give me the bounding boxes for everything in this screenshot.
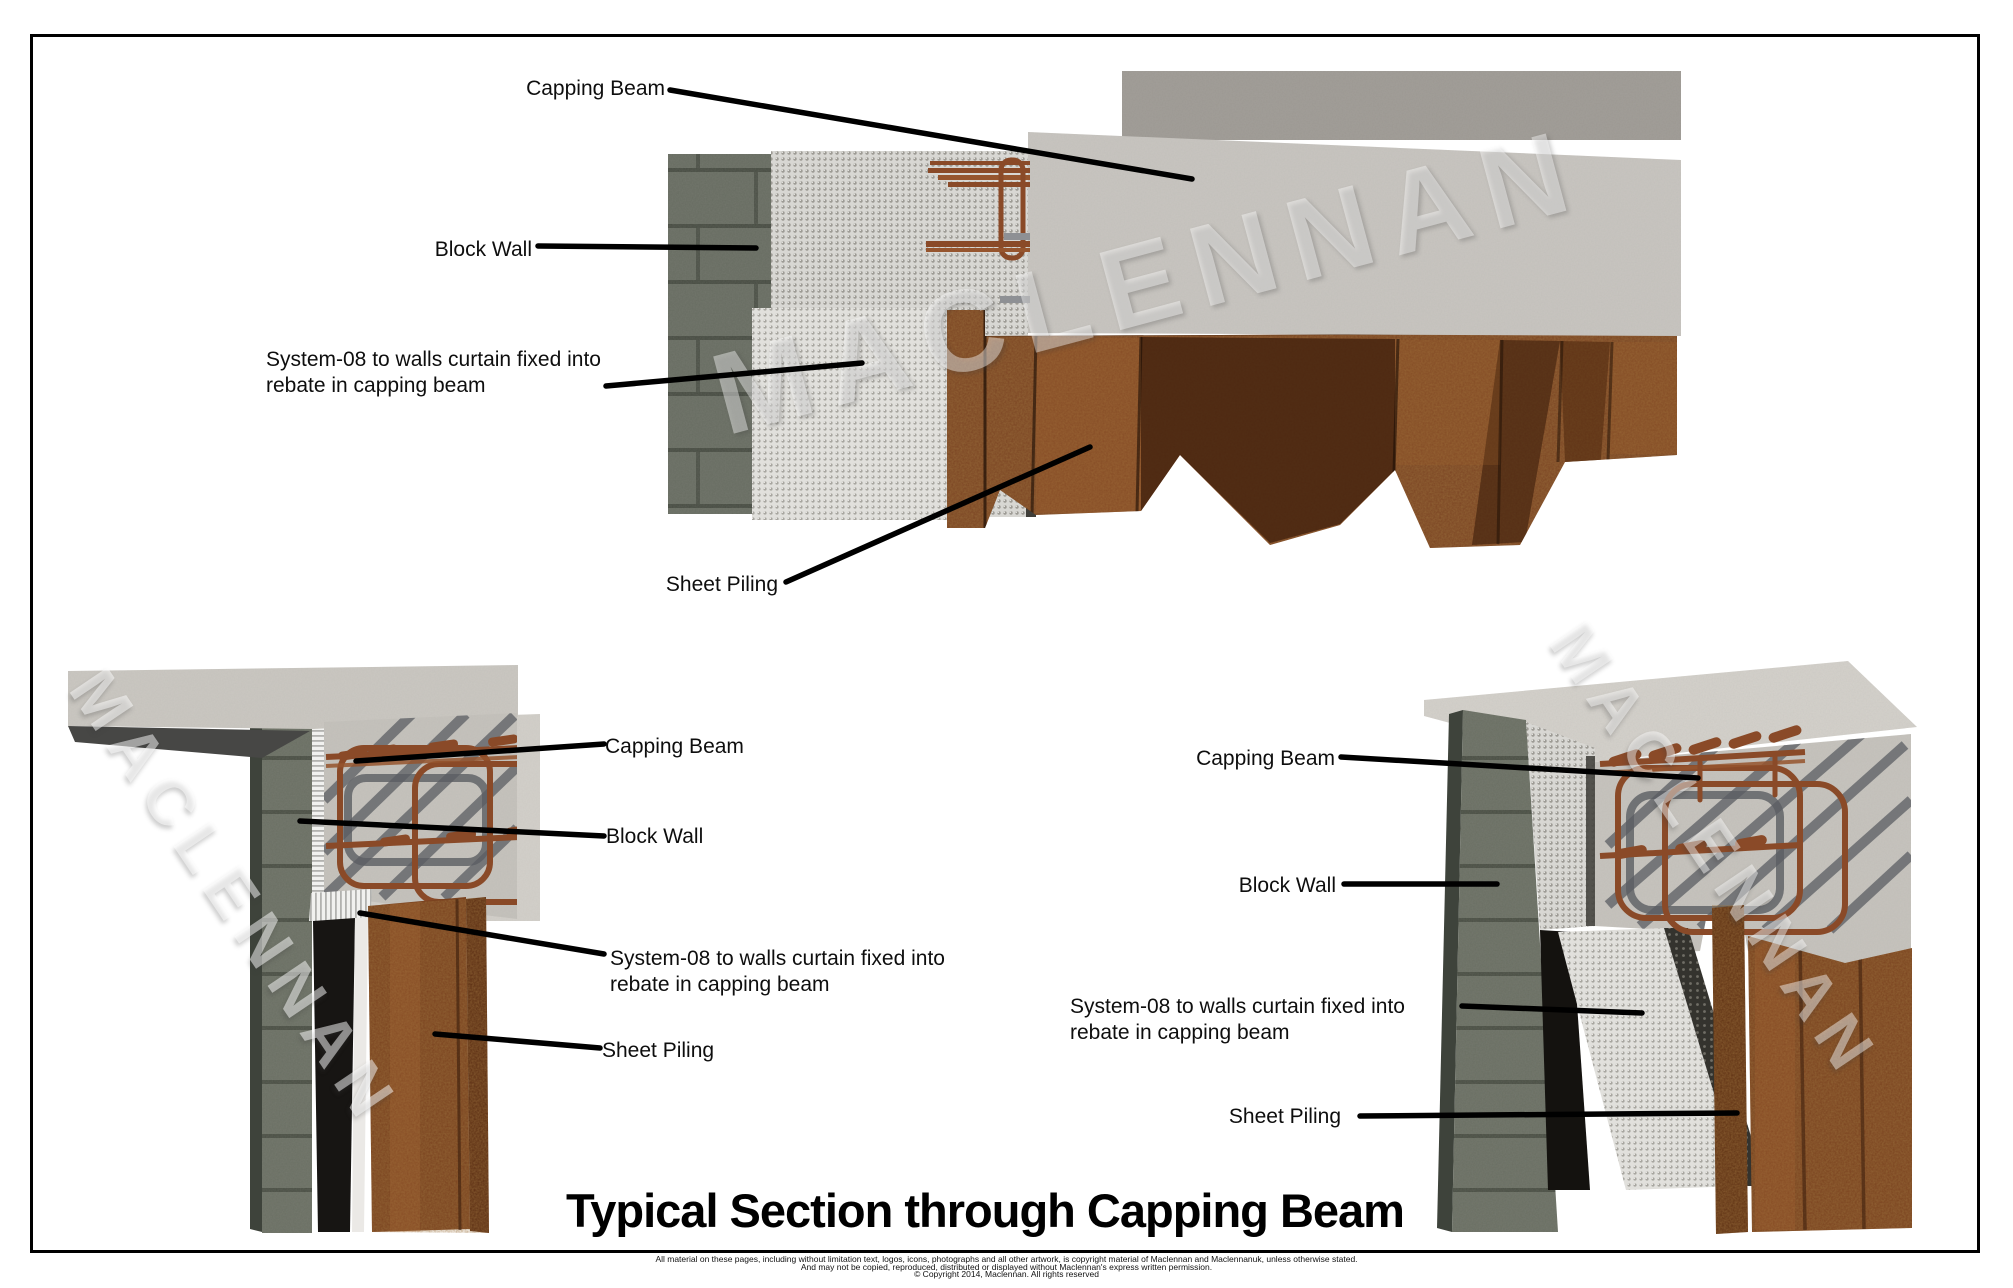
bl-leader-sheet-piling [435, 1034, 600, 1048]
copyright-line-3: © Copyright 2014, Maclennan. All rights … [0, 1271, 2013, 1279]
bl-label-system08: System-08 to walls curtain fixed into re… [610, 946, 1000, 998]
top-label-capping-beam: Capping Beam [430, 76, 665, 102]
page-title: Typical Section through Capping Beam [540, 1183, 1430, 1238]
br-leader-system08 [1462, 1006, 1642, 1013]
bl-label-system08-line1: System-08 to walls curtain fixed into [610, 946, 1000, 972]
bl-label-sheet-piling: Sheet Piling [602, 1038, 714, 1064]
top-label-system08-line2: rebate in capping beam [266, 373, 646, 399]
drawing-sheet: MACLENNAN MACLENNAN MACLENNAN Capping Be… [0, 0, 2013, 1288]
br-label-sheet-piling: Sheet Piling [1104, 1104, 1341, 1130]
br-label-block-wall: Block Wall [1098, 873, 1336, 899]
br-leader-capping-beam [1341, 757, 1698, 778]
br-label-system08-line2: rebate in capping beam [1070, 1020, 1470, 1046]
bl-leader-block-wall [300, 821, 604, 836]
br-leader-sheet-piling [1360, 1113, 1737, 1116]
top-label-block-wall: Block Wall [330, 237, 532, 263]
copyright-footer: All material on these pages, including w… [0, 1256, 2013, 1279]
top-leader-sheet-piling [786, 447, 1090, 582]
top-label-system08: System-08 to walls curtain fixed into re… [266, 347, 646, 399]
br-label-capping-beam: Capping Beam [1098, 746, 1335, 772]
top-label-sheet-piling: Sheet Piling [600, 572, 778, 598]
bl-label-system08-line2: rebate in capping beam [610, 972, 1000, 998]
top-leader-block-wall [538, 246, 756, 248]
bl-label-capping-beam: Capping Beam [605, 734, 744, 760]
bl-leader-capping-beam [356, 744, 604, 761]
bl-leader-system08 [360, 913, 604, 954]
bl-label-block-wall: Block Wall [606, 824, 703, 850]
br-label-system08-line1: System-08 to walls curtain fixed into [1070, 994, 1470, 1020]
leader-lines [0, 0, 2013, 1288]
top-label-system08-line1: System-08 to walls curtain fixed into [266, 347, 646, 373]
top-leader-capping-beam [670, 90, 1192, 179]
br-label-system08: System-08 to walls curtain fixed into re… [1070, 994, 1470, 1046]
